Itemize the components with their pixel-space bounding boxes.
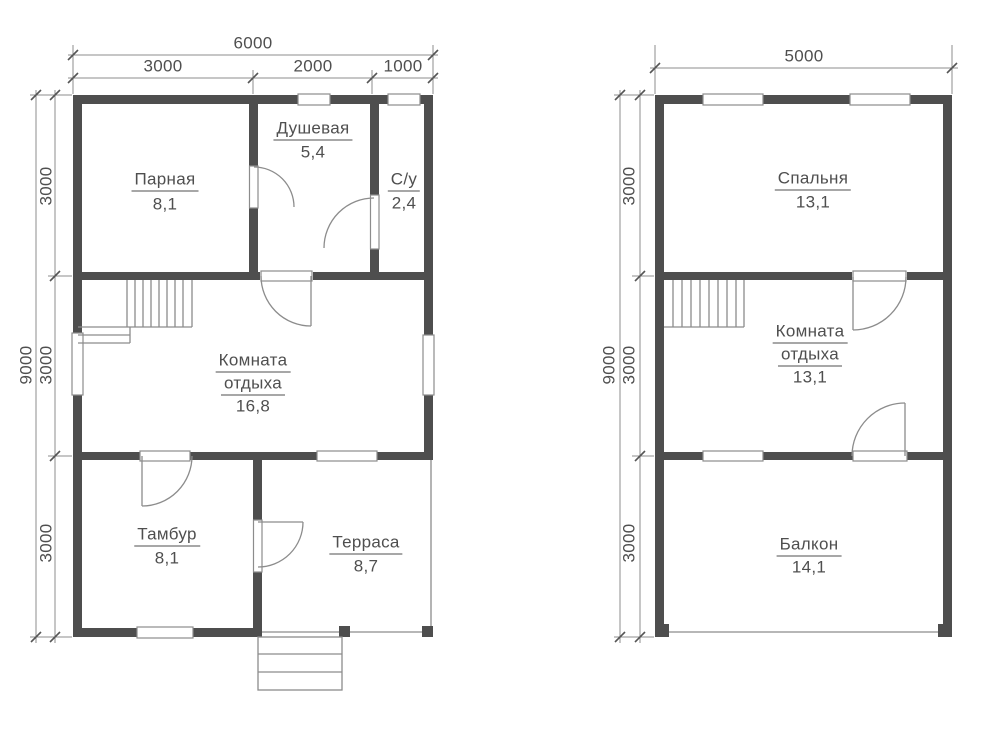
- dim-segment: 3000: [621, 166, 638, 205]
- window: [298, 94, 330, 105]
- dim-segment: 1000: [383, 58, 422, 75]
- dim-segment: 3000: [38, 523, 55, 562]
- door-terrasa: [252, 520, 303, 572]
- room-komnata-area: 16,8: [236, 398, 270, 415]
- dim-total-width-f2: 5000: [784, 48, 823, 65]
- dim-total-height-f2: 9000: [601, 345, 618, 384]
- door-arc: [258, 522, 303, 567]
- window: [703, 451, 763, 461]
- room-parnaya-area: 8,1: [153, 196, 178, 213]
- floor1-stairs: [78, 280, 192, 343]
- room-komnata2-name: отдыха: [778, 346, 842, 367]
- room-dushevaya-area: 5,4: [301, 144, 326, 161]
- window: [72, 333, 83, 395]
- floor2-stairs: [664, 280, 744, 327]
- door-arc: [852, 403, 905, 456]
- door-arc: [254, 167, 294, 207]
- room-spalnya-name: Спальня: [775, 170, 851, 191]
- dim-segment: 3000: [143, 58, 182, 75]
- room-balkon-name: Балкон: [777, 536, 842, 557]
- room-su-area: 2,4: [392, 195, 417, 212]
- terrace-post: [422, 626, 433, 637]
- window: [423, 335, 434, 395]
- room-terrasa-name: Терраса: [329, 534, 402, 555]
- room-tambur-name: Тамбур: [134, 526, 200, 547]
- room-parnaya-name: Парная: [132, 171, 199, 192]
- balcony-post: [655, 624, 669, 637]
- window: [317, 451, 377, 461]
- room-dushevaya-name: Душевая: [273, 120, 352, 141]
- dim-segment: 3000: [621, 523, 638, 562]
- door-spalnya: [852, 271, 907, 330]
- door-su: [324, 195, 380, 249]
- door-arc: [142, 456, 192, 506]
- room-komnata-name: отдыха: [221, 375, 285, 396]
- room-komnata-name: Комната: [216, 352, 291, 373]
- door-arc: [261, 276, 311, 326]
- room-tambur-area: 8,1: [155, 550, 180, 567]
- terrace-post: [339, 626, 350, 637]
- window: [850, 94, 910, 105]
- floor-plan-sheet: 6000 3000 2000 1000 9000 3000 3000 3000 …: [0, 0, 1000, 750]
- door-tambur: [140, 451, 192, 506]
- window: [388, 94, 420, 105]
- door-arc: [853, 277, 906, 330]
- room-balkon-area: 14,1: [792, 559, 826, 576]
- floorplan-drawing: [0, 0, 1000, 750]
- window: [703, 94, 763, 105]
- door-parnaya: [248, 166, 294, 208]
- dim-segment: 2000: [293, 58, 332, 75]
- door-balkon: [852, 403, 907, 461]
- balcony-post: [938, 624, 952, 637]
- door-arc: [324, 198, 374, 248]
- door-dushevaya-komnata: [260, 271, 313, 326]
- window: [137, 627, 193, 638]
- room-spalnya-area: 13,1: [796, 194, 830, 211]
- dim-total-height-f1: 9000: [18, 345, 35, 384]
- balcony-open-edge: [655, 624, 952, 637]
- room-su-name: С/у: [388, 171, 420, 192]
- room-komnata2-name: Комната: [773, 323, 848, 344]
- room-terrasa-area: 8,7: [354, 558, 379, 575]
- room-komnata2-area: 13,1: [793, 369, 827, 386]
- dim-total-width-f1: 6000: [233, 35, 272, 52]
- entrance-steps: [258, 637, 342, 690]
- dim-segment: 3000: [621, 345, 638, 384]
- dim-segment: 3000: [38, 166, 55, 205]
- dim-segment: 3000: [38, 345, 55, 384]
